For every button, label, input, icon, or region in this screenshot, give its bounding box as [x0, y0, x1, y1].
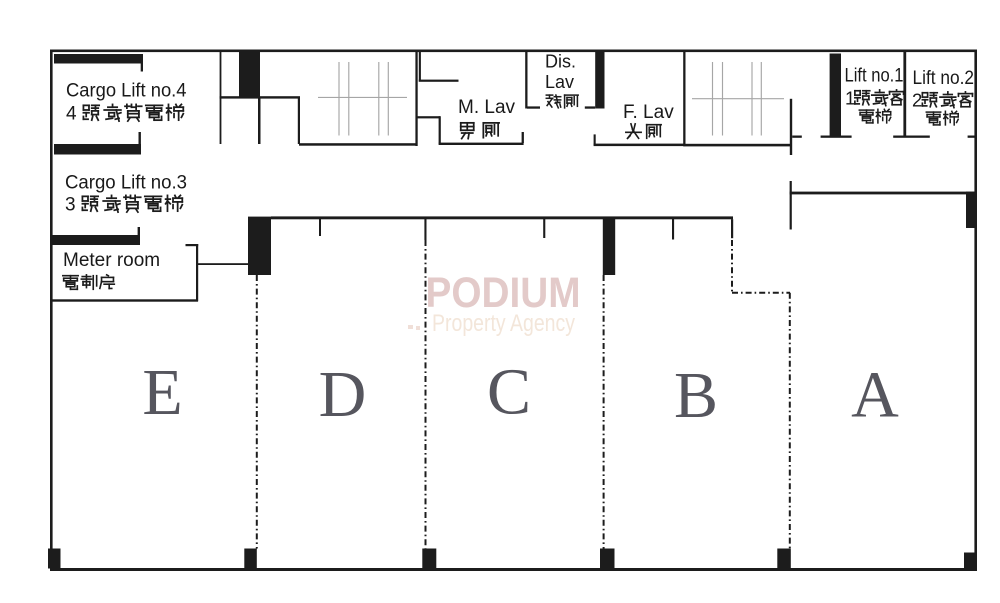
svg-text:M. Lav: M. Lav	[458, 97, 516, 118]
svg-text:3: 3	[65, 195, 76, 216]
svg-text:C: C	[487, 356, 531, 429]
svg-text:2: 2	[912, 90, 922, 111]
svg-text:A: A	[851, 359, 899, 432]
svg-text:E: E	[142, 356, 182, 429]
svg-text:Cargo Lift no.4: Cargo Lift no.4	[66, 81, 187, 102]
svg-text:Lift no.2: Lift no.2	[913, 68, 975, 89]
svg-text:D: D	[319, 358, 367, 431]
svg-text:Meter room: Meter room	[63, 250, 160, 271]
svg-text:Dis.: Dis.	[545, 52, 576, 72]
svg-text:Lift no.1: Lift no.1	[845, 66, 904, 87]
svg-text:Property Agency: Property Agency	[432, 310, 575, 337]
svg-text:F. Lav: F. Lav	[623, 102, 674, 123]
svg-text:B: B	[674, 359, 718, 432]
svg-text:4: 4	[66, 104, 77, 125]
svg-text:Lav: Lav	[545, 72, 574, 92]
svg-text:1: 1	[845, 88, 855, 109]
svg-text:Cargo Lift no.3: Cargo Lift no.3	[65, 173, 187, 194]
